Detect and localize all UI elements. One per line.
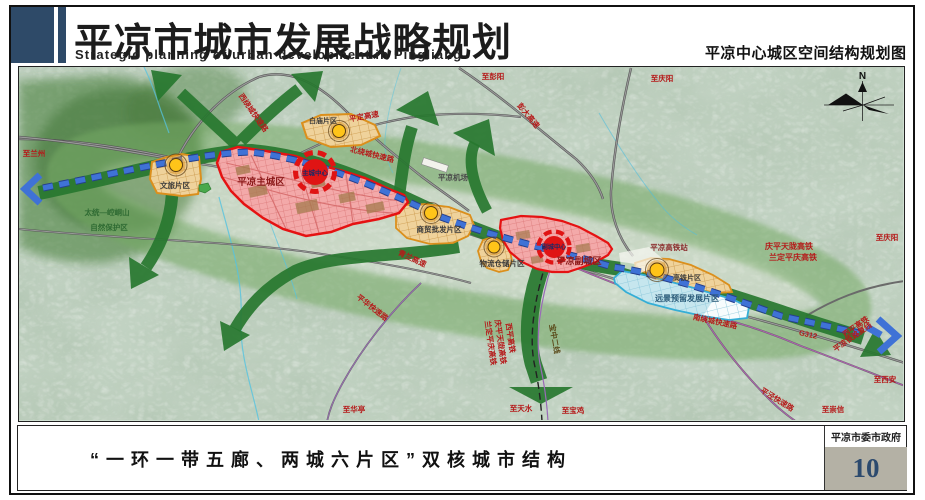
svg-text:商贸批发片区: 商贸批发片区	[417, 224, 462, 234]
svg-text:高铁片区: 高铁片区	[673, 273, 701, 282]
svg-text:太统—崆峒山: 太统—崆峒山	[85, 207, 130, 217]
svg-text:平凉机场: 平凉机场	[438, 172, 468, 182]
svg-text:主城中心: 主城中心	[302, 168, 329, 177]
svg-text:自然保护区: 自然保护区	[90, 222, 128, 232]
svg-text:平凉主城区: 平凉主城区	[237, 176, 285, 188]
svg-text:平凉高铁站: 平凉高铁站	[650, 242, 688, 252]
svg-text:至彭阳: 至彭阳	[482, 71, 505, 81]
svg-text:至西安: 至西安	[874, 374, 897, 384]
svg-text:至庆阳: 至庆阳	[876, 232, 899, 242]
svg-text:远景预留发展片区: 远景预留发展片区	[655, 293, 719, 303]
svg-text:白庙片区: 白庙片区	[309, 116, 337, 125]
svg-text:至庆阳: 至庆阳	[651, 73, 674, 83]
svg-text:物流仓储片区: 物流仓储片区	[480, 258, 525, 268]
svg-text:平凉副城区: 平凉副城区	[556, 255, 601, 266]
svg-text:至兰州: 至兰州	[23, 148, 46, 158]
svg-text:兰定平庆高铁: 兰定平庆高铁	[769, 252, 817, 262]
svg-text:至天水: 至天水	[510, 403, 533, 413]
svg-text:至崇信: 至崇信	[822, 404, 845, 414]
svg-text:文旅片区: 文旅片区	[160, 180, 190, 190]
svg-text:副城中心: 副城中心	[542, 243, 568, 251]
svg-text:至宝鸡: 至宝鸡	[562, 405, 585, 415]
svg-text:庆平天陇高铁: 庆平天陇高铁	[764, 241, 813, 251]
svg-text:至华亭: 至华亭	[343, 404, 366, 414]
svg-text:N: N	[859, 71, 866, 82]
